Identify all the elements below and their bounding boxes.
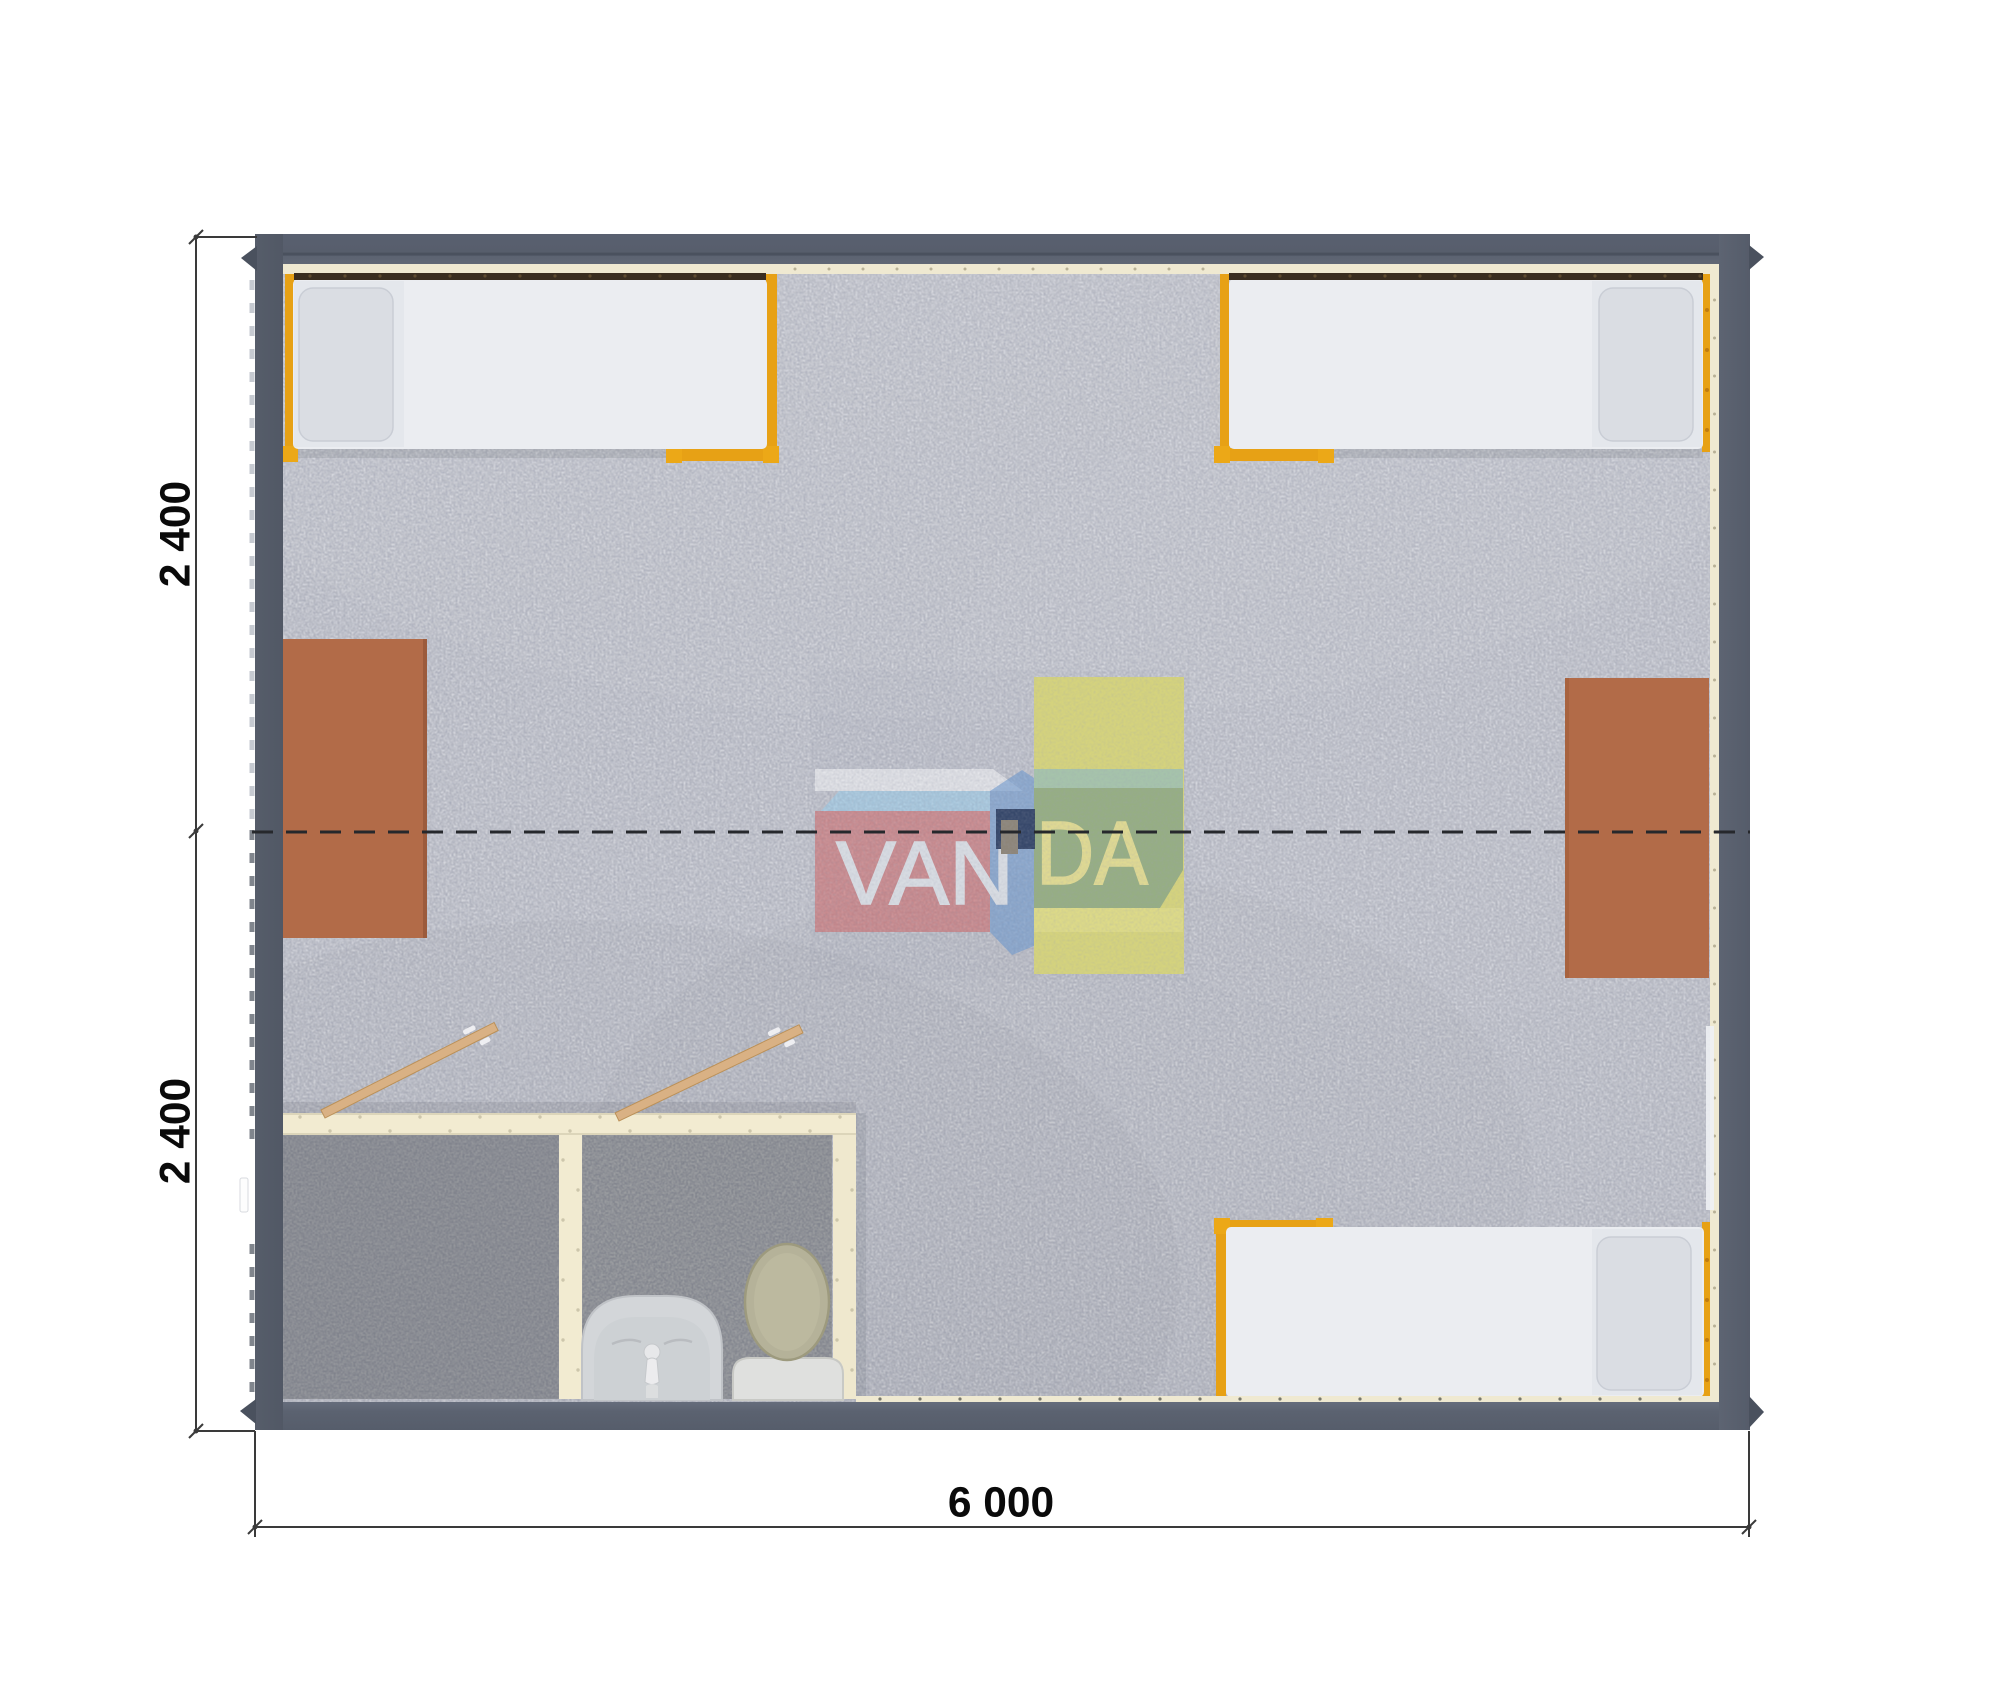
svg-text:2 400: 2 400: [153, 1078, 200, 1184]
svg-text:6 000: 6 000: [948, 1480, 1054, 1527]
svg-text:2 400: 2 400: [153, 481, 200, 587]
